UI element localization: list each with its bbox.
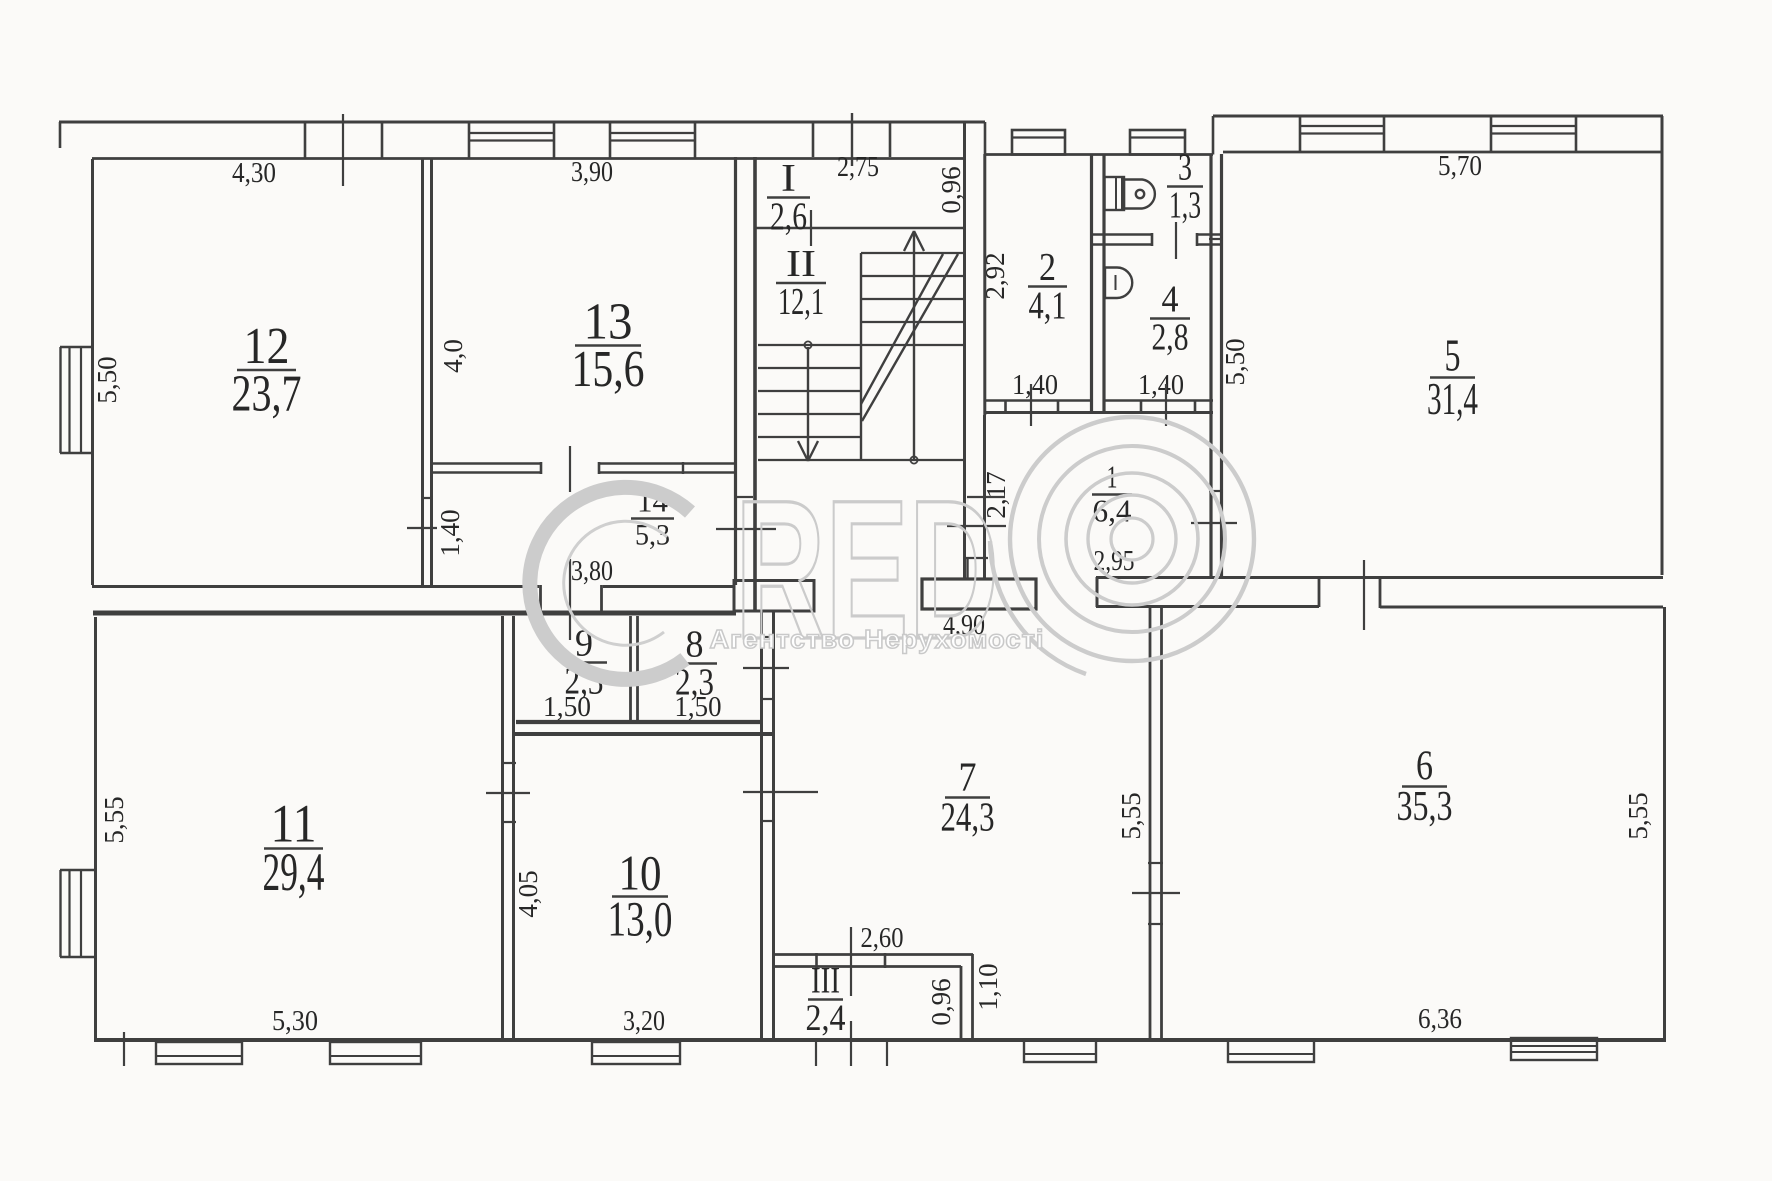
svg-text:1,40: 1,40 [1138, 370, 1184, 401]
svg-text:2,4: 2,4 [806, 998, 846, 1039]
svg-text:0,96: 0,96 [926, 978, 956, 1025]
svg-text:23,7: 23,7 [232, 365, 302, 422]
svg-text:5,55: 5,55 [99, 796, 129, 843]
svg-text:Агентство Нерухомості: Агентство Нерухомості [710, 624, 1045, 654]
svg-text:5,50: 5,50 [92, 356, 122, 403]
svg-text:III: III [811, 961, 840, 1002]
svg-text:2,75: 2,75 [837, 152, 879, 183]
svg-text:1,40: 1,40 [435, 509, 465, 556]
svg-text:4,1: 4,1 [1029, 284, 1067, 327]
svg-text:4,30: 4,30 [232, 158, 276, 189]
svg-text:6,36: 6,36 [1418, 1004, 1462, 1035]
svg-text:1,50: 1,50 [543, 692, 591, 723]
svg-text:4,05: 4,05 [513, 870, 543, 917]
svg-text:2: 2 [1039, 246, 1056, 289]
svg-text:1,3: 1,3 [1169, 185, 1201, 227]
svg-text:3: 3 [1178, 147, 1192, 189]
svg-text:2,60: 2,60 [861, 923, 904, 954]
svg-text:2,8: 2,8 [1152, 317, 1189, 359]
svg-text:5,55: 5,55 [1623, 792, 1653, 839]
svg-text:1,40: 1,40 [1012, 370, 1058, 401]
svg-text:13,0: 13,0 [608, 891, 673, 947]
svg-text:II: II [786, 243, 816, 285]
svg-text:2,6: 2,6 [770, 195, 807, 238]
svg-text:3,90: 3,90 [571, 157, 613, 188]
svg-text:4: 4 [1162, 279, 1179, 321]
svg-text:31,4: 31,4 [1427, 373, 1478, 424]
svg-text:8: 8 [686, 624, 704, 666]
svg-text:5,55: 5,55 [1116, 792, 1146, 839]
svg-text:3,80: 3,80 [571, 556, 613, 587]
svg-text:35,3: 35,3 [1397, 784, 1453, 830]
svg-text:5,50: 5,50 [1220, 338, 1250, 385]
svg-text:2,92: 2,92 [980, 252, 1010, 299]
svg-text:3,20: 3,20 [623, 1006, 665, 1037]
svg-text:24,3: 24,3 [941, 794, 995, 840]
svg-text:0,96: 0,96 [936, 166, 966, 213]
svg-text:12,1: 12,1 [778, 281, 824, 323]
svg-text:4,0: 4,0 [438, 339, 468, 373]
svg-text:6: 6 [1416, 744, 1433, 790]
svg-text:5,30: 5,30 [272, 1006, 318, 1037]
svg-text:15,6: 15,6 [572, 341, 645, 398]
svg-text:5,70: 5,70 [1438, 151, 1482, 182]
svg-text:I: I [781, 157, 796, 200]
svg-text:1,50: 1,50 [675, 692, 722, 723]
svg-text:29,4: 29,4 [263, 842, 325, 902]
svg-text:1,10: 1,10 [973, 963, 1003, 1010]
